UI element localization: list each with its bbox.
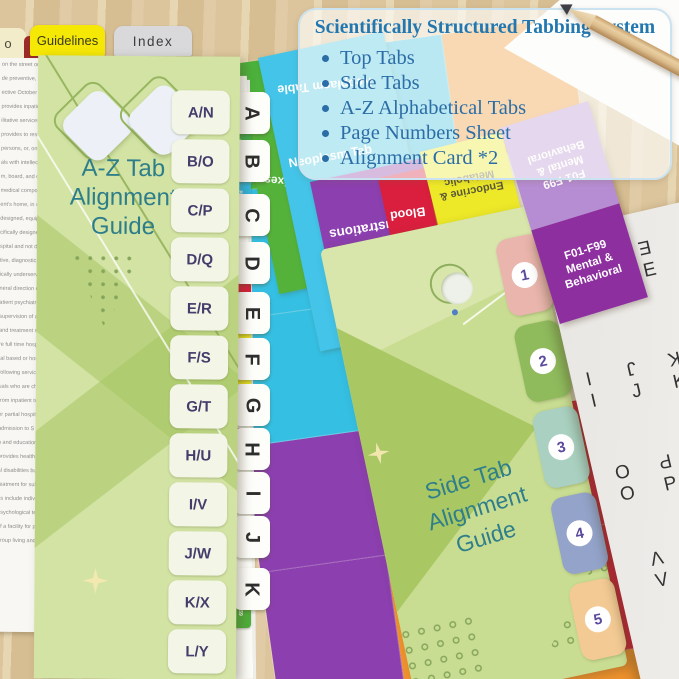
- alphabet-tab-letter: B: [240, 154, 263, 168]
- number-circle: 5: [582, 604, 613, 635]
- side-tab-number: 4: [574, 524, 586, 542]
- cutout-letter-flipped: V: [640, 543, 674, 569]
- bullet-icon: [322, 105, 329, 112]
- az-range-tab-label: E/R: [187, 300, 212, 317]
- bullet-icon: [322, 55, 329, 62]
- az-range-tab: H/U: [169, 433, 227, 477]
- alphabet-tab-letter: G: [240, 397, 263, 413]
- az-range-tab-label: H/U: [185, 447, 211, 464]
- product-photo-medical-tab-system: on the street or fde preventive, sorecti…: [0, 0, 679, 679]
- alphabet-tab: I: [233, 472, 270, 514]
- alphabet-tab: E: [233, 292, 270, 334]
- sparkle-icon: [82, 568, 108, 594]
- cutout-letter: O: [611, 481, 645, 507]
- az-range-tab-label: L/Y: [185, 643, 208, 660]
- cutout-letter-flipped: O: [605, 457, 639, 483]
- feature-bullet-label: Top Tabs: [340, 47, 415, 70]
- cutout-letter-flipped: F: [670, 223, 679, 249]
- feature-bullet-label: Page Numbers Sheet: [340, 122, 511, 145]
- az-tab-alignment-card: A-Z Tab Alignment Guide A/NB/OC/PD/QE/RF…: [34, 55, 240, 679]
- az-range-tab-label: B/O: [187, 153, 214, 170]
- alphabet-tab: J: [233, 516, 270, 558]
- bullet-icon: [322, 80, 329, 87]
- alphabet-tab-letter: H: [240, 442, 263, 456]
- alphabet-tab: G: [233, 384, 270, 426]
- alphabet-tab: F: [233, 338, 270, 380]
- cutout-letter: V: [645, 568, 679, 594]
- cutout-letter-pair: FF: [670, 223, 679, 274]
- az-range-tab: A/N: [172, 90, 230, 134]
- cutout-letter-flipped: P: [648, 447, 679, 473]
- az-range-tab: F/S: [170, 335, 228, 379]
- alphabet-tab: K: [233, 568, 270, 610]
- alphabet-tab-letter: I: [240, 490, 263, 496]
- bullet-icon: [322, 130, 329, 137]
- mental-label: F01-F99 Mental & Behavioral: [555, 235, 624, 292]
- side-tab-number: 2: [537, 352, 549, 370]
- number-circle: 1: [509, 260, 540, 291]
- feature-bullet: A-Z Alphabetical Tabs: [318, 96, 670, 121]
- az-range-tab: I/V: [169, 482, 227, 526]
- alphabet-tab-letter: E: [240, 306, 263, 319]
- az-range-tab-label: I/V: [189, 496, 207, 513]
- az-range-tab: E/R: [170, 286, 228, 330]
- az-range-tab: C/P: [171, 188, 229, 232]
- feature-bullet: Page Numbers Sheet: [318, 121, 670, 146]
- feature-bullet-list: Top TabsSide TabsA-Z Alphabetical TabsPa…: [318, 46, 670, 171]
- feature-bullet-label: Side Tabs: [340, 72, 420, 95]
- feature-bullet: Side Tabs: [318, 71, 670, 96]
- bullet-icon: [322, 155, 329, 162]
- az-range-tab: L/Y: [168, 629, 226, 673]
- az-range-tab: J/W: [169, 531, 227, 575]
- side-tab-number: 5: [592, 610, 604, 628]
- cutout-letter-pair: VV: [640, 543, 679, 594]
- cutout-letter: I: [577, 389, 611, 415]
- cutout-letter: J: [620, 379, 654, 405]
- cutout-letter-flipped: K: [657, 344, 679, 370]
- az-range-tab: K/X: [168, 580, 226, 624]
- az-range-tab-label: G/T: [186, 398, 211, 415]
- alphabet-tab: H: [233, 428, 270, 470]
- number-circle: 4: [564, 518, 595, 549]
- number-circle: 3: [546, 432, 577, 463]
- cutout-letter: P: [654, 471, 679, 497]
- az-range-tab-label: A/N: [188, 104, 214, 121]
- cutout-letter-flipped: I: [571, 364, 605, 390]
- cutout-letter-pair: JJ: [614, 354, 653, 405]
- number-circle: 2: [528, 346, 559, 377]
- cutout-letter-pair: KK: [657, 344, 679, 395]
- cutout-letter-pair: PP: [648, 447, 679, 498]
- cutout-letter: K: [663, 369, 679, 395]
- side-tab-number: 3: [555, 438, 567, 456]
- alphabet-tab-letter: C: [240, 208, 263, 222]
- alphabet-tab-letter: F: [240, 353, 263, 365]
- az-range-tab: B/O: [171, 139, 229, 183]
- alphabet-tab-letter: D: [240, 256, 263, 270]
- az-range-tab-column: A/NB/OC/PD/QE/RF/SG/TH/UI/VJ/WK/XL/Y: [168, 90, 230, 673]
- feature-bullet: Top Tabs: [318, 46, 670, 71]
- feature-bullet: Alignment Card *2: [318, 146, 670, 171]
- cutout-letter-pair: II: [571, 364, 610, 415]
- side-tab-number: 1: [519, 266, 531, 284]
- az-range-tab-label: F/S: [187, 349, 210, 366]
- az-range-tab-label: C/P: [188, 202, 213, 219]
- feature-bullet-label: A-Z Alphabetical Tabs: [340, 97, 526, 120]
- az-range-tab-label: J/W: [184, 545, 211, 562]
- az-range-tab-label: D/Q: [186, 251, 213, 268]
- az-range-tab: G/T: [170, 384, 228, 428]
- alphabet-tab-letter: K: [240, 582, 263, 596]
- az-range-tab: D/Q: [171, 237, 229, 281]
- alphabet-tab-letter: J: [240, 531, 263, 542]
- cutout-letter-pair: OO: [605, 457, 644, 508]
- az-range-tab-label: K/X: [185, 594, 210, 611]
- alphabet-tab-letter: A: [240, 106, 263, 120]
- ring-dot-pattern-decor: [396, 611, 496, 679]
- cutout-letter-flipped: J: [614, 354, 648, 380]
- pin-dot-icon: [451, 309, 458, 316]
- feature-bullet-label: Alignment Card *2: [340, 147, 498, 170]
